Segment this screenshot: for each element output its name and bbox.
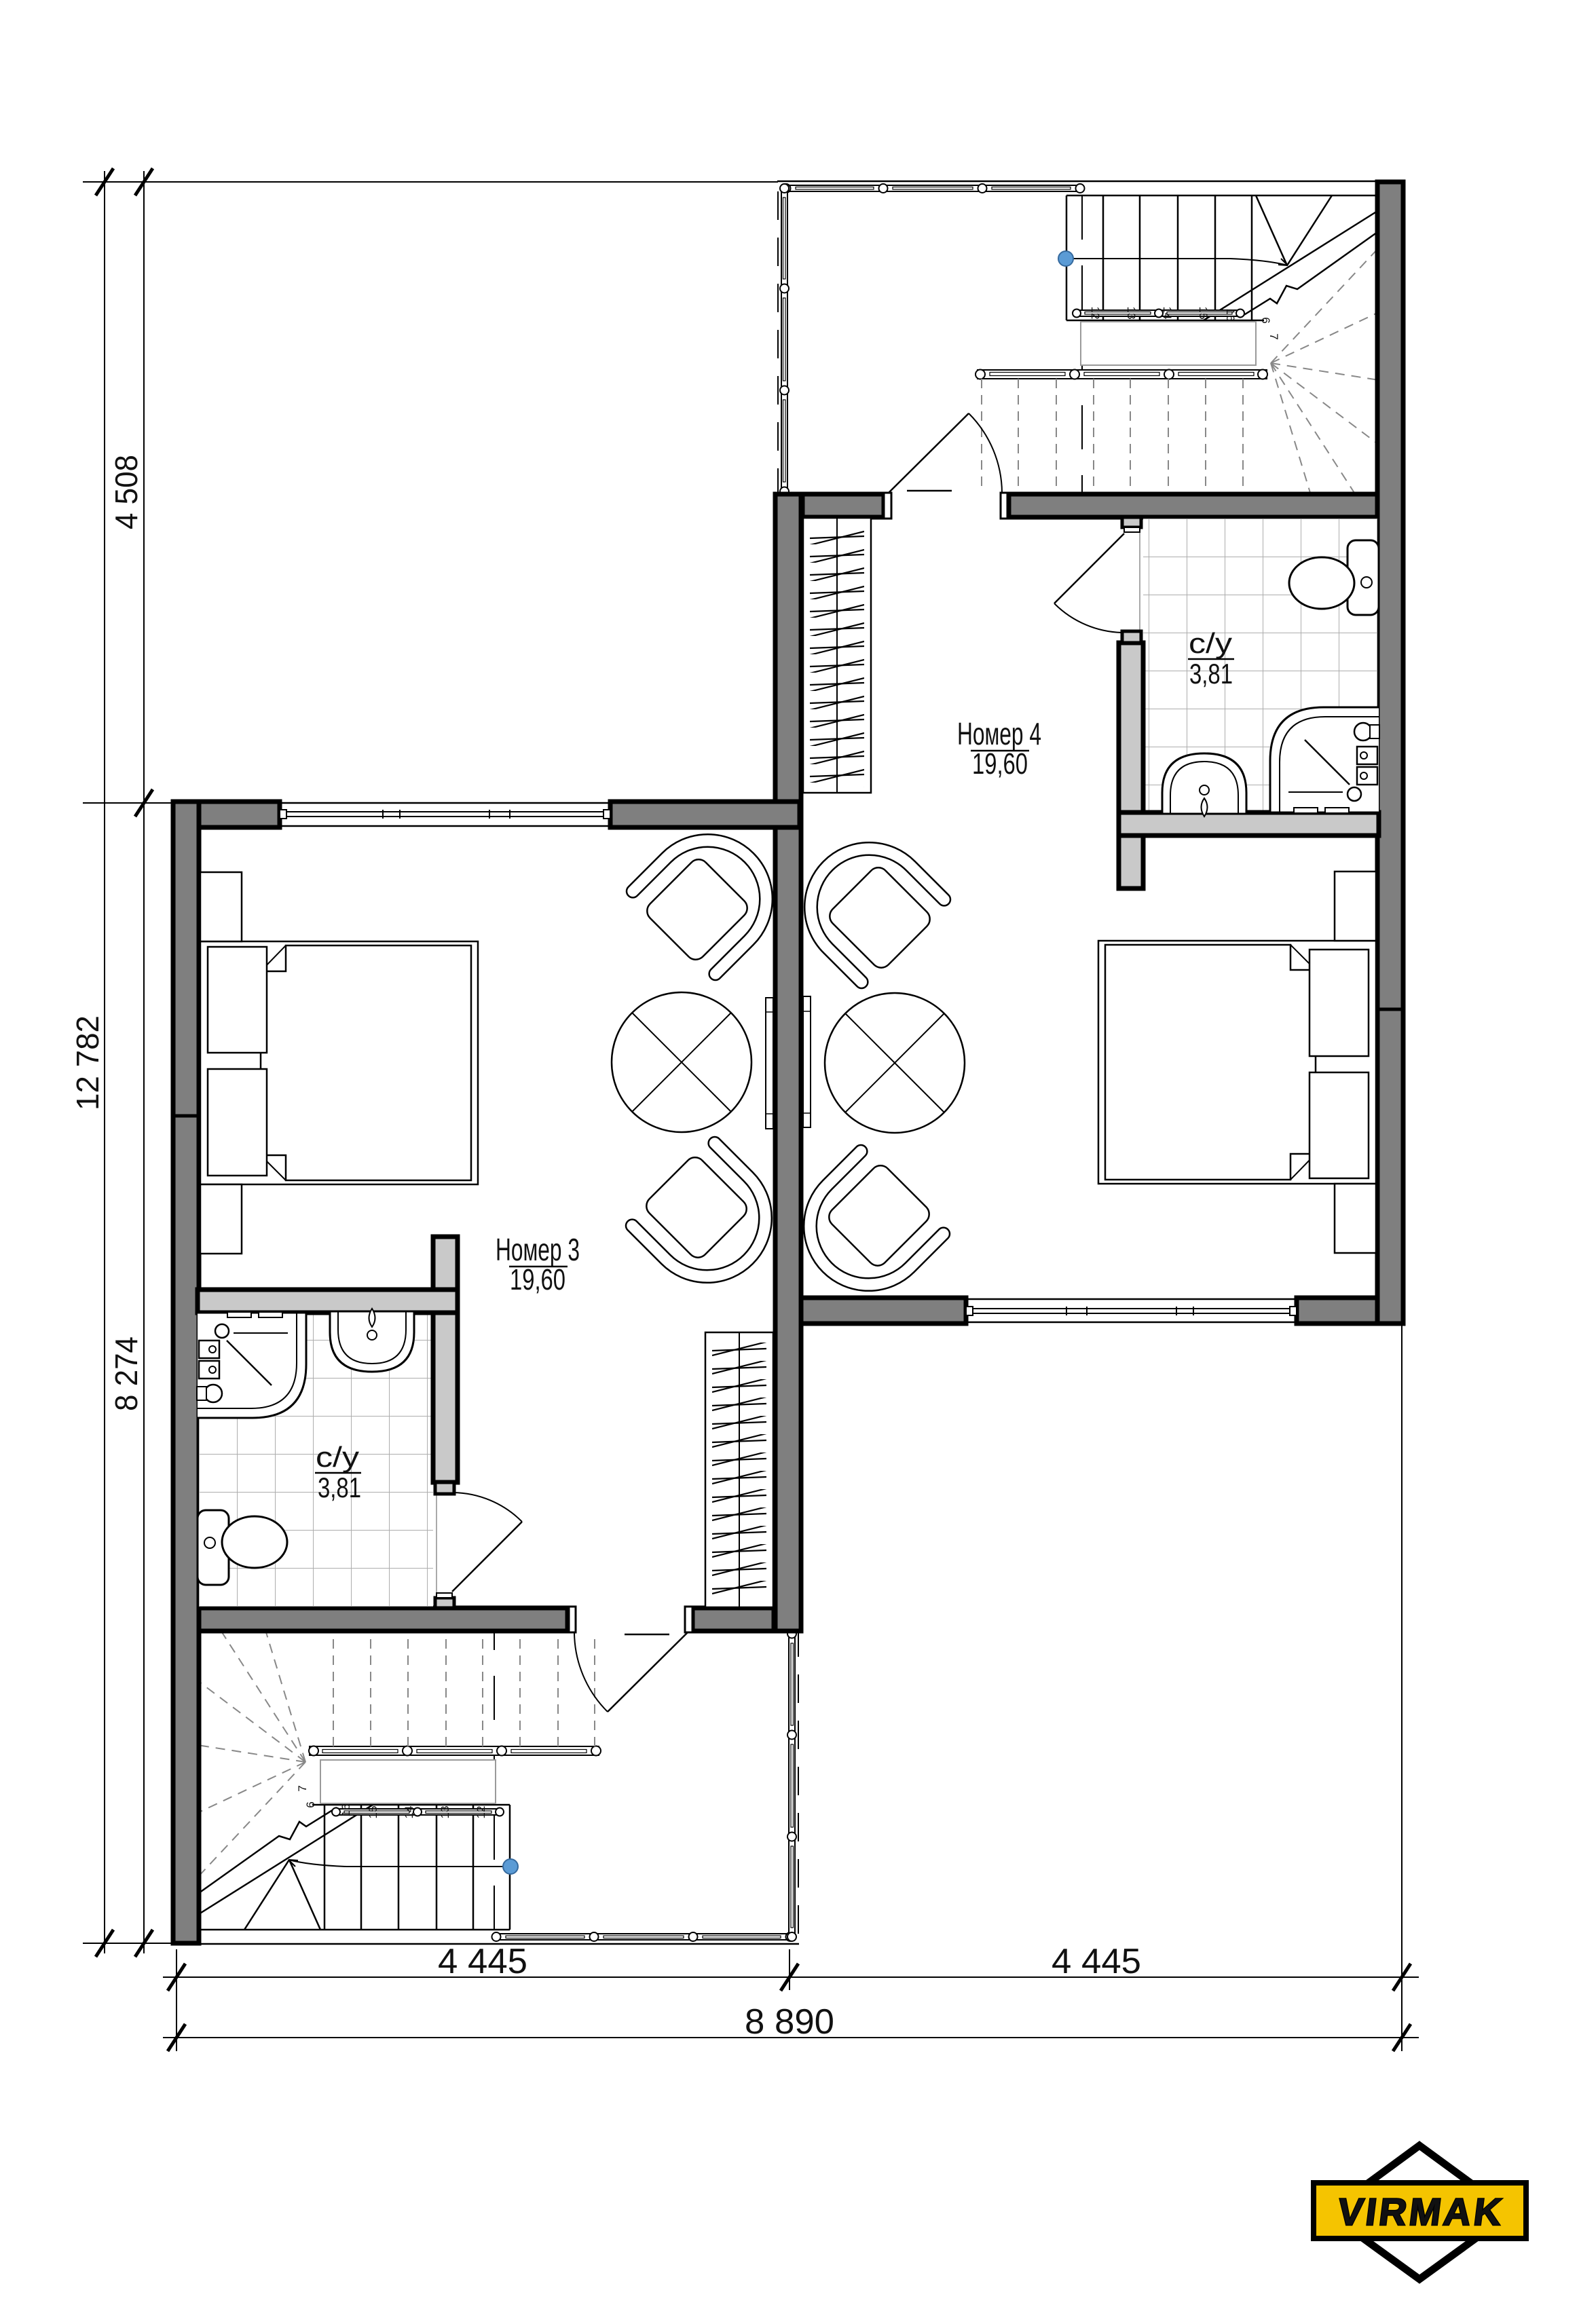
svg-text:Номер 3: Номер 3 <box>496 1232 580 1267</box>
svg-text:8 274: 8 274 <box>109 1336 144 1411</box>
svg-text:8 890: 8 890 <box>745 2002 834 2042</box>
svg-text:с/у: с/у <box>1189 627 1232 659</box>
svg-text:3,81: 3,81 <box>318 1472 361 1503</box>
svg-text:3,81: 3,81 <box>1189 658 1233 690</box>
svg-text:4 508: 4 508 <box>109 455 144 529</box>
svg-text:4 445: 4 445 <box>1052 1942 1141 1981</box>
svg-text:4 445: 4 445 <box>438 1942 527 1981</box>
svg-text:12 782: 12 782 <box>70 1015 105 1110</box>
svg-text:с/у: с/у <box>316 1441 359 1473</box>
svg-text:Номер 4: Номер 4 <box>957 716 1041 751</box>
svg-text:19,60: 19,60 <box>972 747 1028 781</box>
svg-text:19,60: 19,60 <box>510 1263 565 1296</box>
svg-text:VIRMAK: VIRMAK <box>1335 2190 1507 2233</box>
